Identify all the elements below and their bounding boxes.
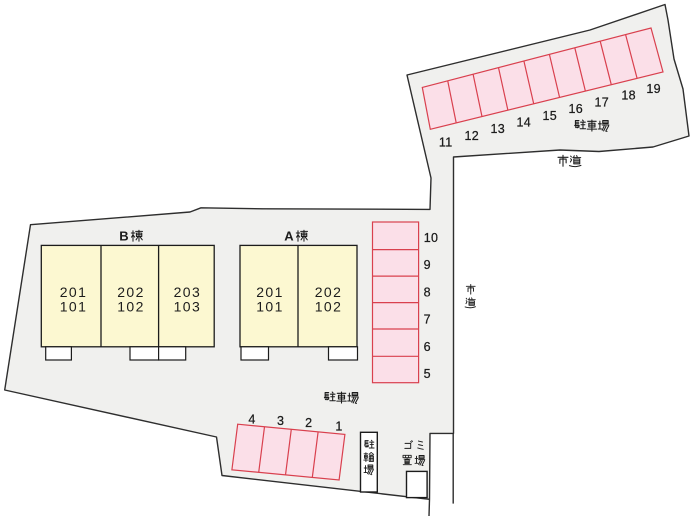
svg-text:2: 2 [305, 416, 312, 430]
svg-text:B: B [119, 229, 128, 244]
svg-text:101: 101 [256, 298, 284, 314]
svg-text:101: 101 [60, 298, 88, 314]
svg-text:10: 10 [424, 231, 439, 245]
svg-text:1: 1 [335, 420, 342, 434]
svg-text:102: 102 [315, 298, 343, 314]
svg-text:13: 13 [490, 122, 505, 136]
svg-text:15: 15 [542, 109, 557, 123]
svg-text:4: 4 [248, 413, 255, 427]
svg-text:5: 5 [424, 367, 431, 381]
svg-text:103: 103 [174, 298, 202, 314]
svg-text:3: 3 [277, 414, 284, 428]
svg-text:12: 12 [464, 129, 479, 143]
svg-text:18: 18 [621, 89, 636, 103]
svg-text:14: 14 [516, 116, 531, 130]
svg-text:16: 16 [568, 102, 583, 116]
svg-text:A: A [284, 229, 294, 244]
svg-text:11: 11 [439, 136, 453, 150]
svg-text:6: 6 [424, 340, 431, 354]
svg-text:9: 9 [424, 258, 431, 272]
svg-text:8: 8 [424, 285, 431, 299]
svg-text:19: 19 [646, 82, 661, 96]
svg-text:7: 7 [424, 313, 431, 327]
svg-text:102: 102 [117, 298, 145, 314]
svg-text:17: 17 [594, 95, 609, 109]
